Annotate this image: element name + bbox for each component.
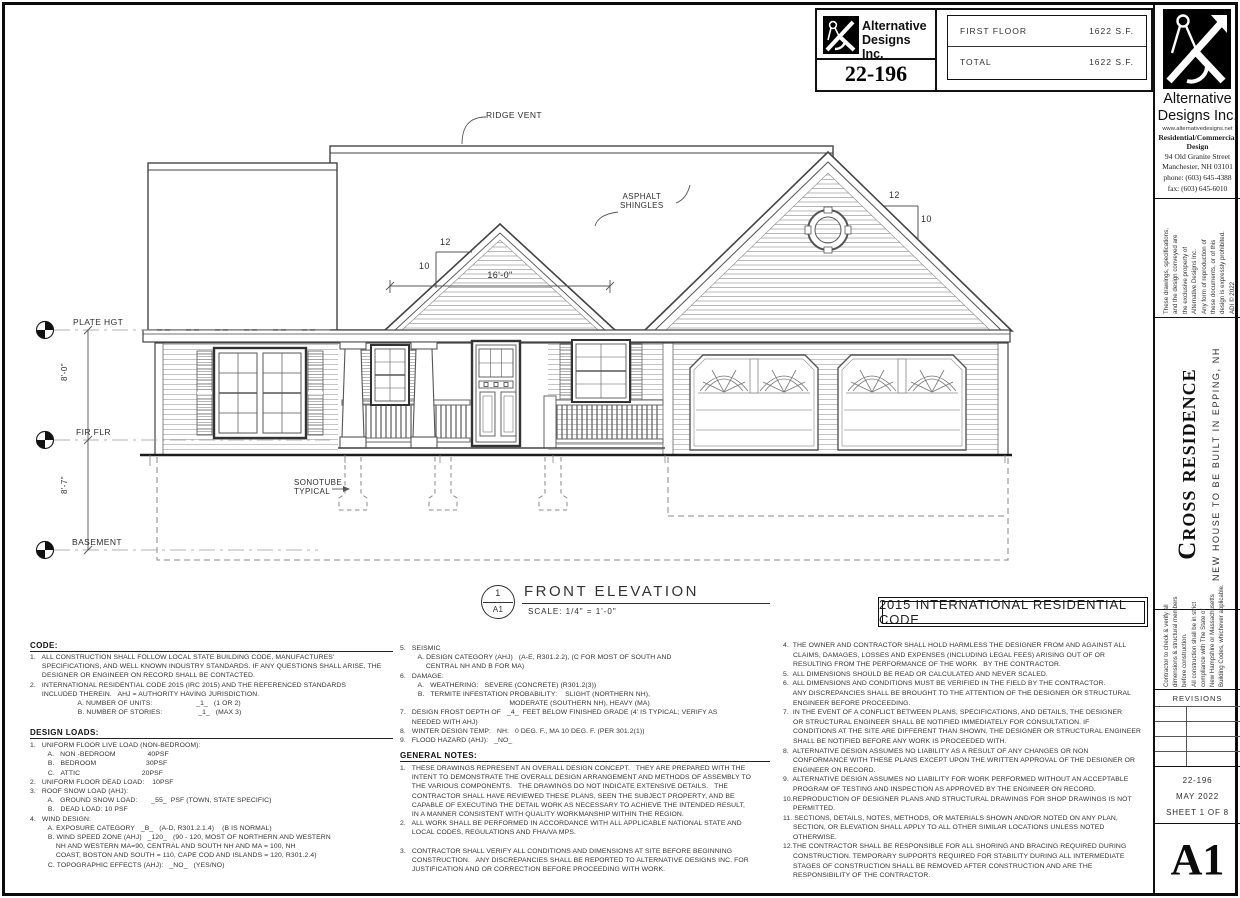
- area-table: FIRST FLOOR 1622 S.F. TOTAL 1622 S.F.: [947, 15, 1147, 80]
- front-elevation-drawing: [0, 0, 1155, 640]
- pitch-run-right: 10: [921, 214, 932, 224]
- foundation-dashed: [157, 457, 1008, 560]
- sidebar-phone: phone: (603) 645-4388: [1155, 173, 1240, 182]
- code-section-heading: CODE:: [30, 641, 393, 652]
- sidebar-project-number: 22-196: [1155, 776, 1240, 785]
- pitch-rise-right: 12: [889, 190, 900, 200]
- area-label: FIRST FLOOR: [960, 26, 1027, 36]
- sidebar-company-line1: Alternative: [1155, 91, 1240, 108]
- pitch-rise-center: 12: [440, 237, 451, 247]
- area-row-total: TOTAL 1622 S.F.: [948, 47, 1146, 77]
- project-subtitle: NEW HOUSE TO BE BUILT IN EPPING, NH: [1211, 347, 1221, 581]
- sidebar-address: 94 Old Granite Street Manchester, NH 031…: [1155, 152, 1240, 171]
- project-number: 22-196: [817, 58, 935, 87]
- sidebar: Alternative Designs Inc. www.alternative…: [1153, 5, 1240, 893]
- front-door: [472, 341, 520, 446]
- view-title: FRONT ELEVATION: [524, 583, 699, 600]
- copyright-note: These drawings, specifications, and the …: [1162, 202, 1238, 314]
- title-block-company-cell: Alternative Designs Inc. 22-196: [817, 10, 937, 90]
- ridge-vent-label: RIDGE VENT: [486, 110, 542, 120]
- sidebar-divider: [1155, 766, 1240, 767]
- design-loads-heading: DESIGN LOADS:: [30, 728, 393, 739]
- revisions-heading: REVISIONS: [1155, 694, 1240, 703]
- drawing-sheet: RIDGE VENT ASPHALT SHINGLES PLATE HGT FI…: [0, 0, 1240, 898]
- right-window: [560, 340, 642, 402]
- project-title: Cross residence: [1174, 368, 1202, 559]
- detail-sheet-ref: A1: [482, 605, 514, 614]
- detail-bubble-divider: [483, 602, 513, 603]
- sheet-id: A1: [1155, 829, 1240, 891]
- garage-door-left: [690, 355, 818, 450]
- left-double-window: [197, 348, 323, 438]
- sonotubes-dashed: [339, 457, 567, 510]
- first-floor-label: FIR FLR: [76, 427, 111, 437]
- company-logo-large: [1163, 9, 1231, 89]
- area-label: TOTAL: [960, 57, 992, 67]
- general-notes-1-3: 1. THESE DRAWINGS REPRESENT AN OVERALL D…: [400, 764, 751, 874]
- company-logo-small: [823, 16, 859, 54]
- code-banner-inner-border: [882, 601, 1145, 624]
- gable-width-dim-label: 16'-0": [478, 270, 522, 280]
- design-loads-notes: 1. UNIFORM FLOOR LIVE LOAD (NON-BEDROOM)…: [30, 741, 331, 870]
- revisions-row-line: [1155, 751, 1240, 752]
- sheet-number-label: SHEET 1 OF 8: [1155, 808, 1240, 817]
- code-banner: 2015 INTERNATIONAL RESIDENTIAL CODE: [878, 597, 1148, 627]
- dim-plate-to-floor: 8'-0": [60, 342, 69, 402]
- sonotube-label: SONOTUBE TYPICAL: [294, 478, 342, 496]
- project-title-block: Cross residence NEW HOUSE TO BE BUILT IN…: [1157, 319, 1237, 609]
- dim-floor-to-basement: 8'-7": [60, 455, 69, 515]
- code-section-notes: 1. ALL CONSTRUCTION SHALL FOLLOW LOCAL S…: [30, 653, 381, 717]
- plate-height-label: PLATE HGT: [73, 317, 123, 327]
- sidebar-divider: [1155, 823, 1240, 824]
- area-value: 1622 S.F.: [1089, 57, 1134, 67]
- view-title-underline: [522, 603, 770, 604]
- sidebar-divider: [1155, 198, 1240, 199]
- area-row-first-floor: FIRST FLOOR 1622 S.F.: [948, 16, 1146, 47]
- revisions-column-divider: [1186, 706, 1187, 766]
- general-notes-4-12: 4. THE OWNER AND CONTRACTOR SHALL HOLD H…: [783, 641, 1141, 881]
- sidebar-fax: fax: (603) 645-6010: [1155, 184, 1240, 193]
- company-name-line2: Designs Inc.: [862, 33, 935, 61]
- view-scale: SCALE: 1/4" = 1'-0": [528, 607, 617, 616]
- revisions-row-line: [1155, 736, 1240, 737]
- title-block: Alternative Designs Inc. 22-196 FIRST FL…: [815, 8, 1153, 92]
- detail-number: 1: [482, 588, 514, 598]
- sheet-date: MAY 2022: [1155, 792, 1240, 801]
- area-value: 1622 S.F.: [1089, 26, 1134, 36]
- sidebar-divider: [1155, 689, 1240, 690]
- revisions-row-line: [1155, 721, 1240, 722]
- asphalt-shingles-label: ASPHALT SHINGLES: [620, 192, 664, 210]
- pitch-run-center: 10: [419, 261, 430, 271]
- contractor-note: Contractor to check & verify all dimensi…: [1162, 611, 1236, 687]
- company-name-line1: Alternative: [862, 19, 935, 33]
- general-notes-heading: GENERAL NOTES:: [400, 751, 770, 762]
- sidebar-company-line2: Designs Inc.: [1155, 108, 1240, 125]
- garage-door-right: [838, 355, 966, 450]
- sidebar-website: www.alternativedesigns.net: [1155, 126, 1240, 132]
- basement-label: BASEMENT: [72, 537, 122, 547]
- revisions-row-line: [1155, 706, 1240, 707]
- sidebar-divider: [1155, 317, 1240, 318]
- detail-bubble: 1 A1: [481, 585, 515, 619]
- grade-ticks: [150, 455, 1005, 466]
- sidebar-tagline: Residential/Commercial Design: [1155, 133, 1240, 151]
- code-notes-5-9: 5. SEISMIC A. DESIGN CATEGORY (AHJ) (A-E…: [400, 644, 718, 745]
- porch-window: [361, 345, 419, 405]
